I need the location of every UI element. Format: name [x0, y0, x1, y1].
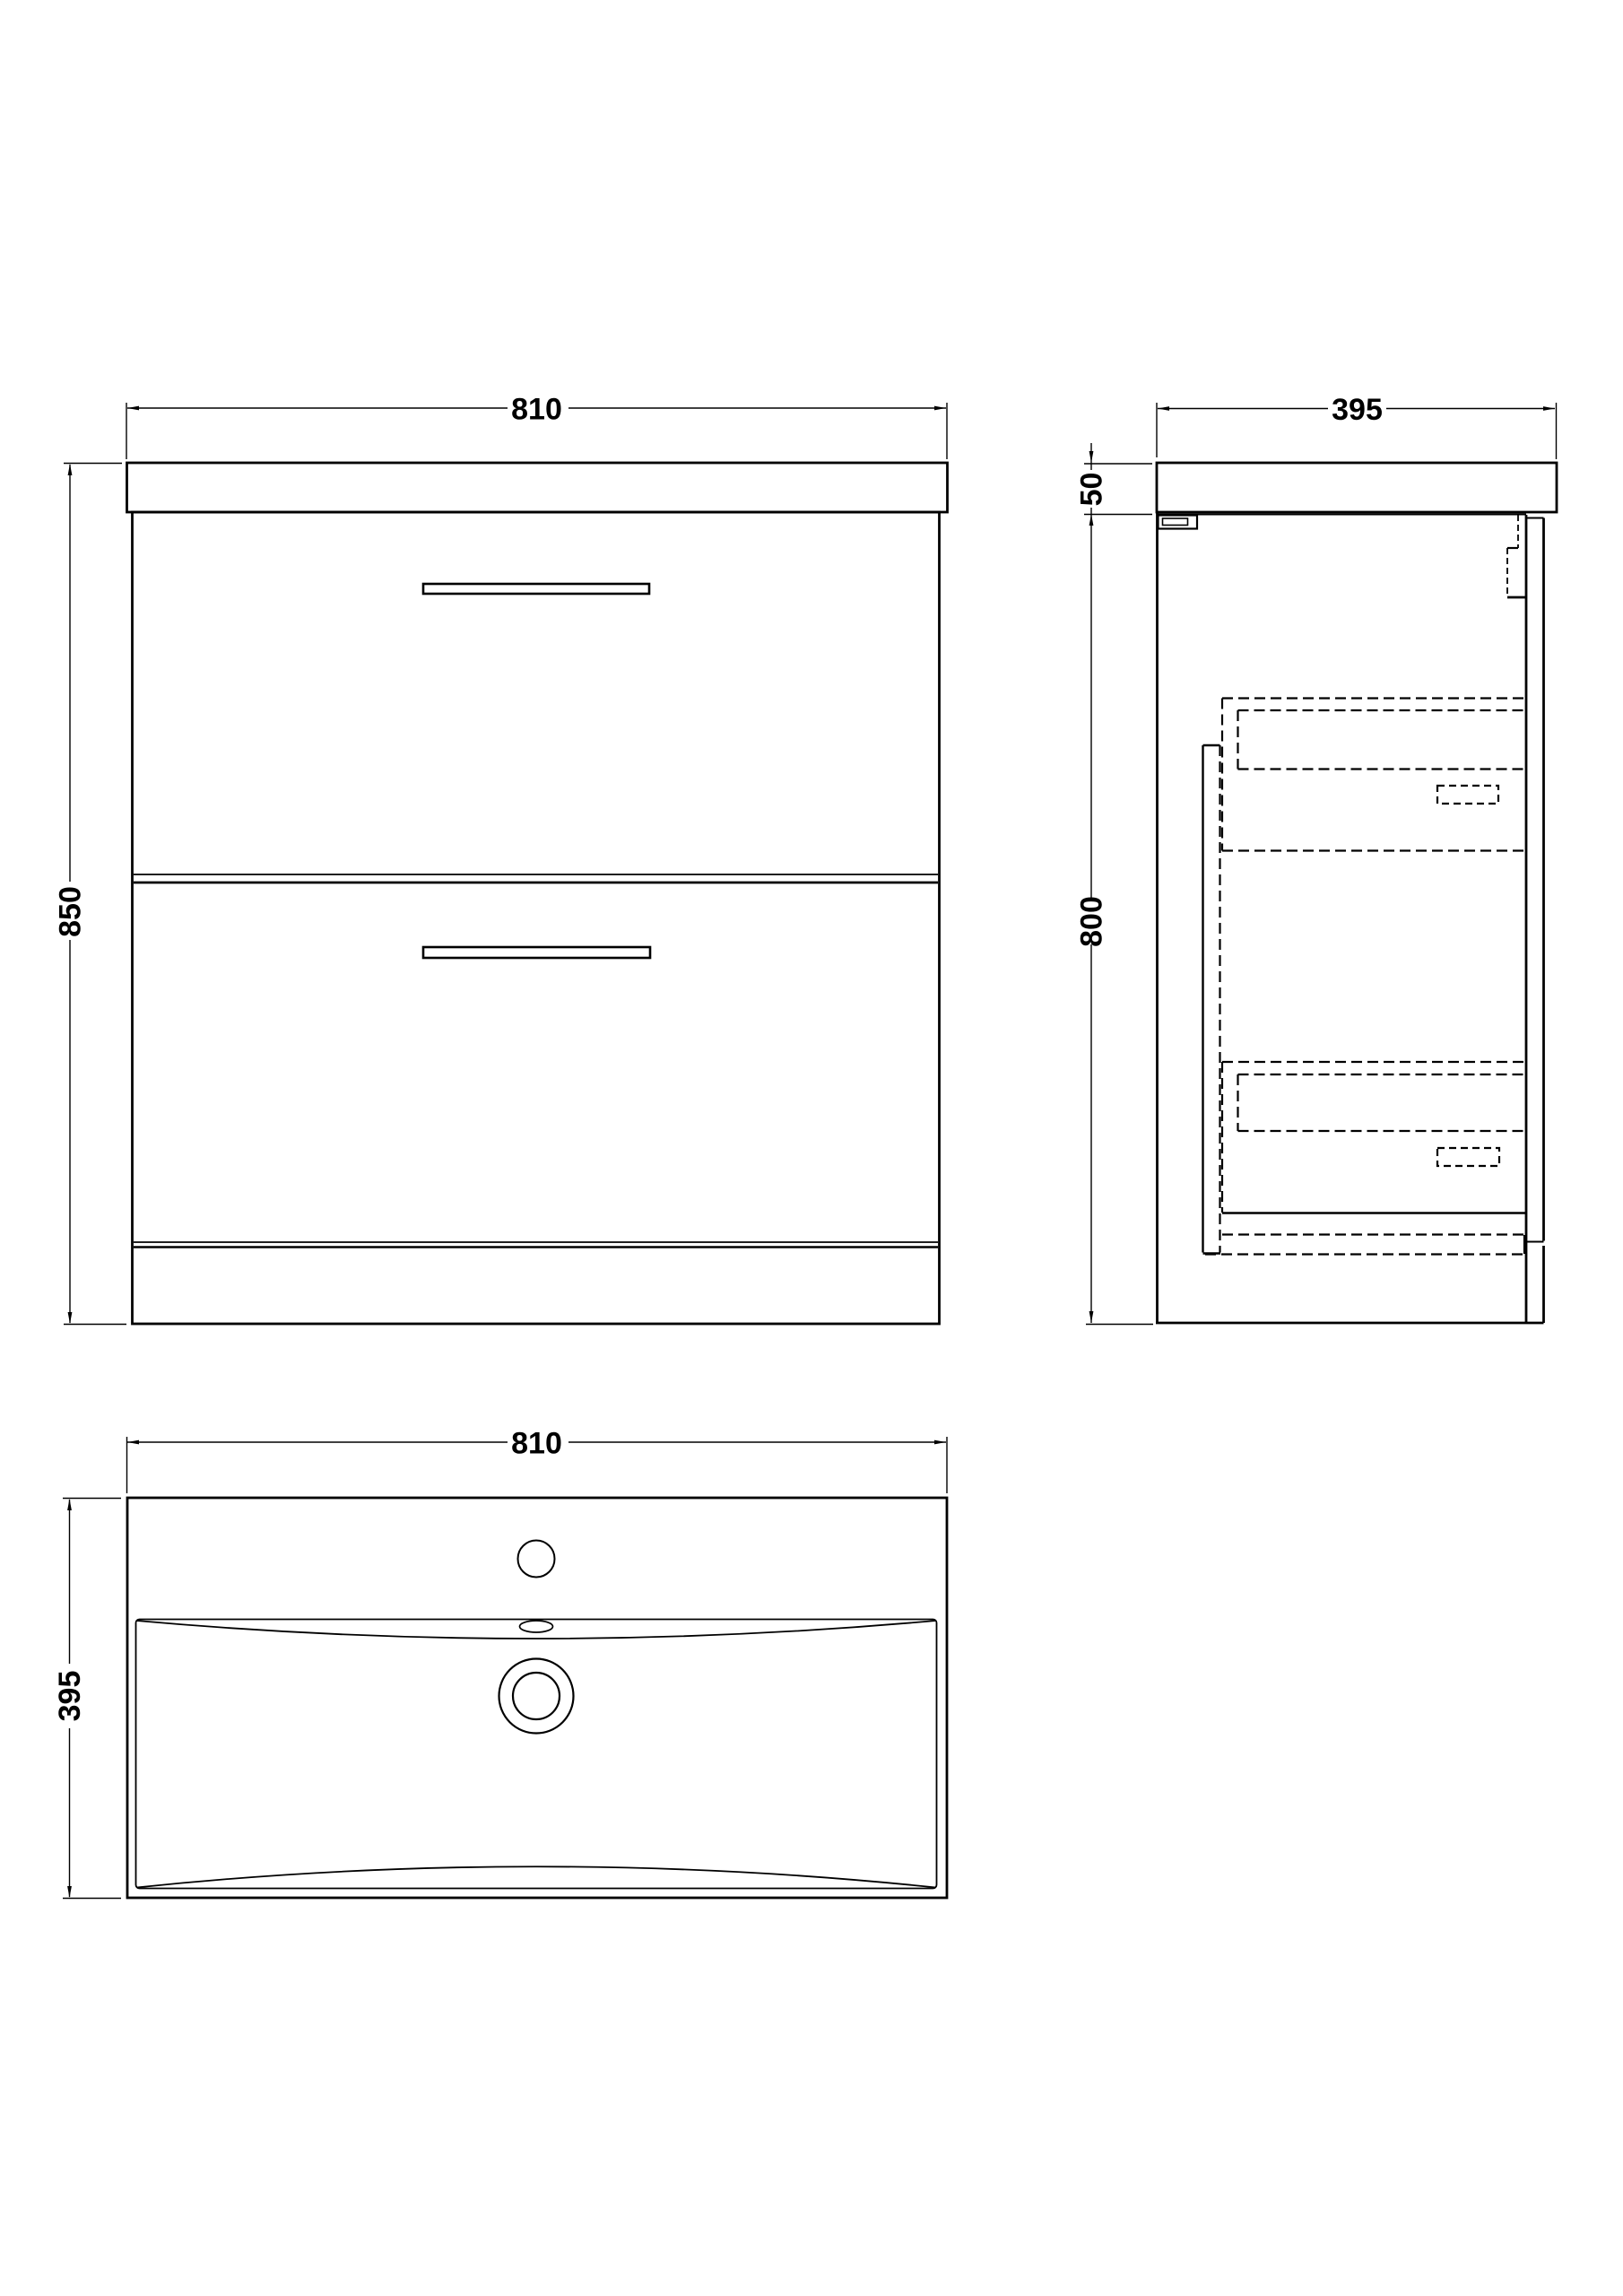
svg-text:810: 810: [511, 393, 562, 427]
svg-text:800: 800: [1075, 896, 1109, 947]
svg-text:50: 50: [1075, 473, 1109, 507]
svg-text:395: 395: [53, 1671, 87, 1722]
svg-text:850: 850: [54, 886, 88, 937]
svg-text:810: 810: [511, 1427, 562, 1461]
svg-text:395: 395: [1332, 393, 1383, 427]
